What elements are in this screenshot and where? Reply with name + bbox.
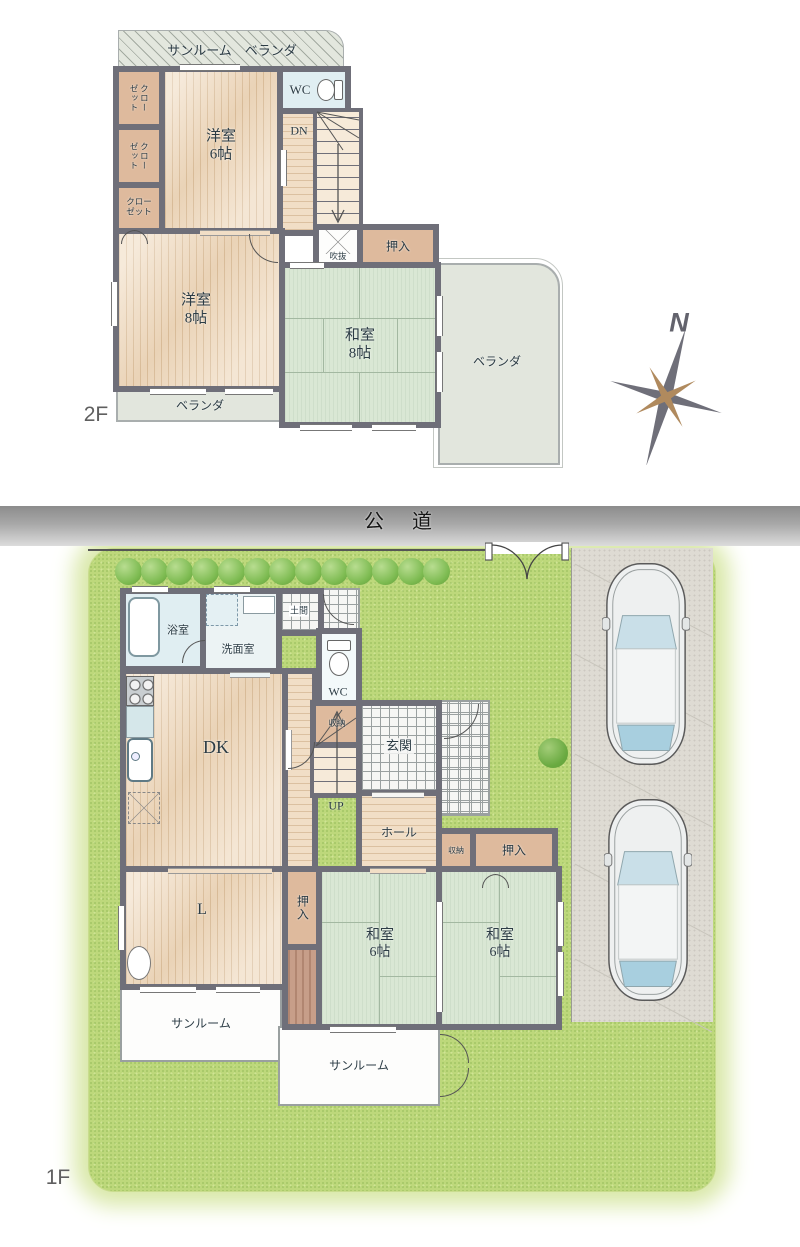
site-boundary-line — [88, 549, 487, 551]
1f-bathroom-label: 浴室 — [167, 624, 189, 637]
1f-stair-storage-label: 収納 — [328, 718, 345, 728]
public-road-label: 公 道 — [364, 510, 436, 534]
2f-closet-1-label: クローゼット — [129, 82, 150, 114]
compass-north-label: N — [669, 307, 689, 340]
2f-western-room-8-label: 洋室 8帖 — [181, 292, 211, 329]
1f-japanese-room-6-b-label: 和室 6帖 — [486, 927, 514, 961]
hedge-bush-icon — [295, 558, 322, 585]
1f-oshiire-west-label: 押入 — [295, 891, 310, 925]
car-icon — [602, 558, 690, 770]
2f-western-room-6-label: 洋室 6帖 — [206, 128, 236, 165]
2f-dn-label: DN — [290, 124, 307, 139]
1f-wc-label: WC — [328, 685, 347, 700]
2f-sunroom-veranda-label: サンルーム ベランダ — [167, 43, 297, 59]
2f-floor-label: 2F — [84, 402, 109, 428]
1f-oshiire-north-label: 押入 — [502, 844, 526, 859]
hedge-bush-icon — [372, 558, 399, 585]
hedge-bush-icon — [398, 558, 425, 585]
2f-veranda-east-label: ベランダ — [473, 355, 521, 370]
hedge-bush-icon — [192, 558, 219, 585]
1f-hall-label: ホール — [381, 826, 417, 841]
1f-doma-label: 土間 — [289, 606, 309, 617]
2f-closet-3-label: クロー ゼット — [126, 197, 152, 218]
1f-japanese-room-6-a-label: 和室 6帖 — [366, 927, 394, 961]
2f-void-label: 吹抜 — [329, 251, 346, 261]
2f-wc-label: WC — [290, 82, 311, 98]
1f-floor-label: 1F — [46, 1165, 71, 1191]
bathtub-icon — [128, 597, 160, 657]
kitchen-counter-icon — [126, 706, 154, 738]
hedge-bush-icon — [244, 558, 271, 585]
1f-up-label: UP — [328, 799, 343, 814]
2f-japanese-room-8-label: 和室 8帖 — [345, 327, 375, 364]
1f-stairs-arrow — [310, 700, 362, 800]
hedge-bush-icon — [321, 558, 348, 585]
1f-toilet-icon — [329, 652, 349, 676]
1f-living-label: L — [197, 900, 207, 920]
hedge-bush-icon — [218, 558, 245, 585]
1f-sunroom-west-label: サンルーム — [171, 1017, 231, 1032]
refrigerator-space-icon — [128, 792, 160, 824]
2f-veranda-south-label: ベランダ — [176, 399, 224, 414]
compass-icon — [598, 300, 733, 465]
kitchen-sink-icon — [127, 738, 153, 782]
washing-machine-icon — [206, 594, 238, 626]
hedge-bush-icon — [269, 558, 296, 585]
1f-entrance-label: 玄関 — [384, 738, 414, 754]
sink-drain-icon — [131, 752, 140, 761]
gate-icon — [485, 542, 569, 582]
tree-icon — [538, 738, 568, 768]
1f-washroom-label: 洗面室 — [222, 643, 255, 656]
1f-sunroom-south-label: サンルーム — [329, 1059, 389, 1074]
stove-icon — [126, 676, 154, 706]
2f-oshiire-label: 押入 — [386, 240, 410, 255]
1f-storage-small-label: 収納 — [448, 846, 464, 856]
2f-stairs-winder-arrow — [313, 108, 363, 230]
1f-dk-label: DK — [203, 737, 229, 759]
2f-toilet-icon — [317, 79, 335, 101]
hedge-bush-icon — [115, 558, 142, 585]
1f-toilet-tank-icon — [327, 640, 351, 651]
2f-toilet-tank-icon — [334, 80, 343, 100]
2f-closet-2-label: クローゼット — [129, 140, 150, 172]
table-icon — [127, 946, 151, 980]
hedge-bush-icon — [141, 558, 168, 585]
vanity-counter-icon — [243, 596, 275, 614]
car-icon — [604, 794, 692, 1006]
floor-plan-canvas: サンルーム ベランダ クローゼット クローゼット クロー ゼット 洋室 6帖 W… — [0, 0, 800, 1247]
